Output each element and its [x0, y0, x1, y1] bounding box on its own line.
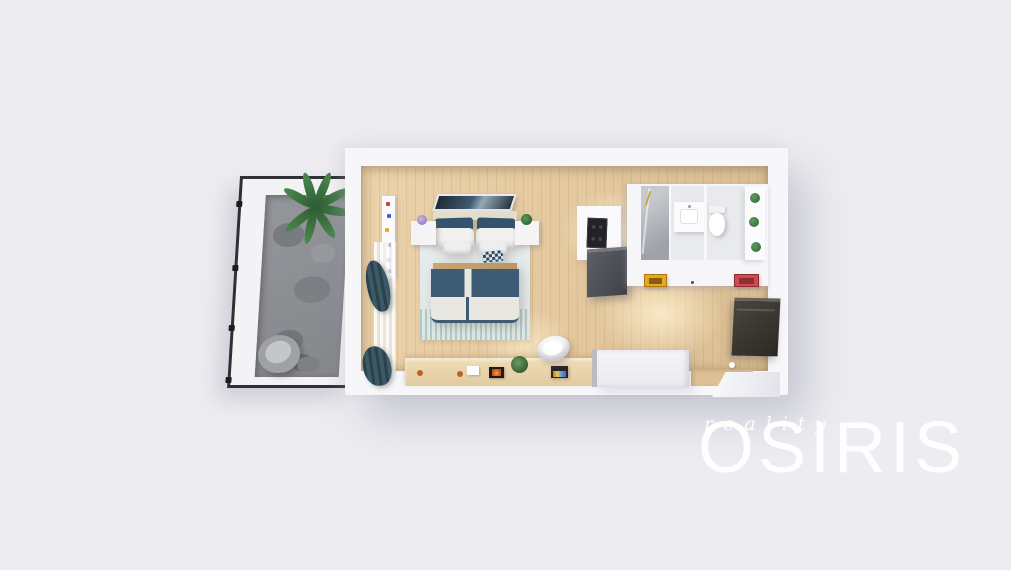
apartment-unit — [345, 148, 788, 395]
purple-flowers — [417, 215, 427, 225]
plant-shelf — [745, 186, 765, 260]
island-edge — [592, 350, 597, 387]
toilet-tank — [709, 206, 725, 213]
railing-post — [229, 325, 235, 331]
notecard — [467, 366, 479, 375]
island-counter — [597, 350, 689, 387]
nightstand-left — [411, 221, 436, 245]
bathroom — [627, 184, 768, 286]
decor-item — [417, 370, 423, 376]
watermark-subtitle: reality — [698, 413, 836, 435]
book — [385, 228, 389, 232]
sink-basin — [680, 209, 698, 224]
fireplace-artwork — [489, 367, 504, 378]
kettle — [729, 362, 735, 368]
checkered-accent-pillow — [482, 250, 503, 263]
kitchen-tall-cabinet — [587, 247, 627, 298]
yellow-wall-art — [644, 274, 667, 287]
railing-post — [232, 265, 238, 271]
bathroom-door-handle — [691, 281, 694, 284]
toilet — [709, 213, 725, 236]
wood-floor — [361, 166, 768, 371]
decor-item — [457, 371, 463, 377]
floorplan-screenshot: OSIRIS reality — [0, 0, 1011, 570]
vanity-sink — [674, 202, 704, 232]
red-wall-art — [734, 274, 759, 287]
navy-duvet — [431, 269, 519, 297]
side-stool — [297, 357, 320, 372]
tv-panel — [731, 298, 780, 357]
railing-post — [236, 201, 242, 207]
desk-plant — [511, 356, 528, 373]
balcony — [227, 176, 362, 388]
nightstand-right — [515, 221, 539, 245]
laptop-screen — [553, 371, 566, 377]
faucet — [688, 205, 691, 208]
glass-shower — [641, 186, 671, 260]
headboard-artwork — [432, 194, 517, 211]
potted-plant — [749, 217, 759, 227]
potted-plant — [521, 214, 532, 225]
book — [386, 202, 390, 206]
potted-plant — [750, 193, 760, 203]
white-duvet — [431, 297, 519, 323]
potted-plant — [751, 242, 761, 252]
bathroom-divider-wall — [704, 186, 707, 260]
cooktop — [586, 218, 607, 249]
railing-post — [225, 377, 231, 383]
potted-palm — [279, 173, 353, 243]
bathroom-floor — [641, 186, 743, 260]
small-pillow — [443, 241, 471, 254]
book — [387, 214, 391, 218]
double-bed — [431, 211, 519, 323]
laptop — [551, 366, 568, 378]
sideboard-desk — [405, 358, 601, 386]
